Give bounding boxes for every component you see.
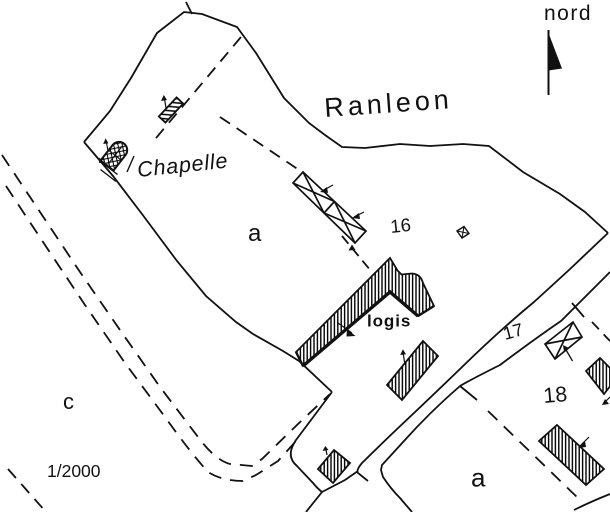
svg-text:18: 18 [542,382,568,408]
svg-text:a: a [471,463,486,493]
svg-text:logis: logis [367,312,411,331]
svg-text:a: a [248,220,262,247]
svg-text:nord: nord [544,2,592,25]
svg-text:16: 16 [389,214,412,237]
svg-text:1/2000: 1/2000 [47,461,101,481]
svg-text:c: c [63,389,74,414]
